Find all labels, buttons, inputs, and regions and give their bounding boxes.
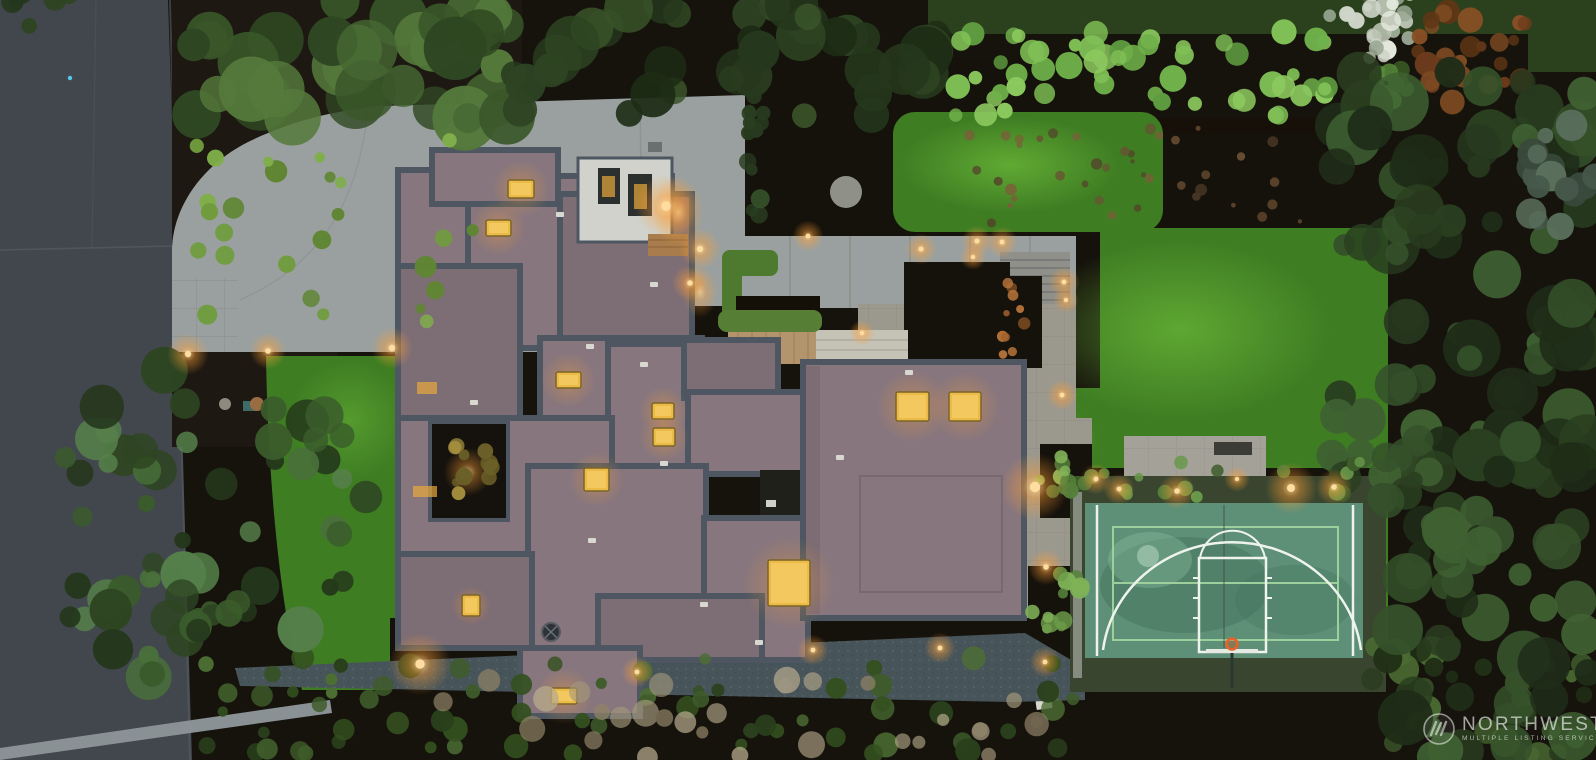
path-light (960, 244, 986, 270)
sport-court (1070, 476, 1386, 692)
path-light (986, 226, 1017, 257)
roof-vent (650, 282, 658, 287)
path-light (1029, 646, 1060, 677)
aerial-photo-stage: NORTHWEST MULTIPLE LISTING SERVICE (0, 0, 1596, 760)
driveway-drain (648, 142, 662, 152)
northwest-mls-logo-icon (1422, 712, 1456, 746)
roof-vent (556, 212, 564, 217)
path-light (1265, 462, 1317, 514)
path-light (635, 175, 697, 237)
entry-hedge (718, 310, 822, 332)
roof-vent (586, 344, 594, 349)
path-light (905, 233, 936, 264)
path-light (389, 633, 451, 695)
roof-vent (660, 461, 668, 466)
skylight (930, 371, 1000, 441)
watermark-line2: MULTIPLE LISTING SERVICE (1462, 736, 1596, 743)
lit-window-slot (602, 176, 615, 197)
watermark-line1: NORTHWEST (1462, 715, 1596, 734)
lit-window-slot (417, 382, 437, 394)
roof-vent (470, 400, 478, 405)
path-light (1103, 473, 1134, 504)
path-light (924, 632, 955, 663)
skylight (569, 452, 624, 507)
roof-vent (700, 602, 708, 607)
roof-vent (836, 455, 844, 460)
path-light (672, 265, 708, 301)
skylight (743, 537, 835, 629)
hvac-unit (542, 623, 560, 641)
garden-bench (1214, 442, 1252, 455)
path-light (1053, 287, 1079, 313)
path-light (679, 228, 721, 270)
skylight (451, 586, 491, 626)
terrace-tree-planter (904, 262, 1010, 368)
path-light (250, 333, 286, 369)
aerial-photo (0, 0, 1596, 760)
path-light (1001, 453, 1069, 521)
lit-window-slot (413, 486, 437, 497)
path-light (167, 333, 209, 375)
path-light (1159, 473, 1195, 509)
path-light (792, 220, 823, 251)
path-light (371, 327, 413, 369)
path-light (1224, 466, 1250, 492)
roof-vent (588, 538, 596, 543)
stepping-stone (830, 176, 862, 208)
path-light (621, 656, 652, 687)
path-light (797, 634, 828, 665)
skylight (640, 413, 688, 461)
hoop-rim (1227, 639, 1238, 650)
watermark: NORTHWEST MULTIPLE LISTING SERVICE (1422, 712, 1596, 746)
path-light (1316, 469, 1352, 505)
path-light (1028, 549, 1064, 585)
reflector-dot (68, 76, 72, 80)
skylight (541, 353, 596, 408)
path-light (849, 320, 875, 346)
watermark-text: NORTHWEST MULTIPLE LISTING SERVICE (1462, 715, 1596, 743)
skylight (471, 201, 526, 256)
roof-vent (640, 362, 648, 367)
roof-vent (905, 370, 913, 375)
roof-vent (755, 640, 763, 645)
path-light (1046, 379, 1077, 410)
